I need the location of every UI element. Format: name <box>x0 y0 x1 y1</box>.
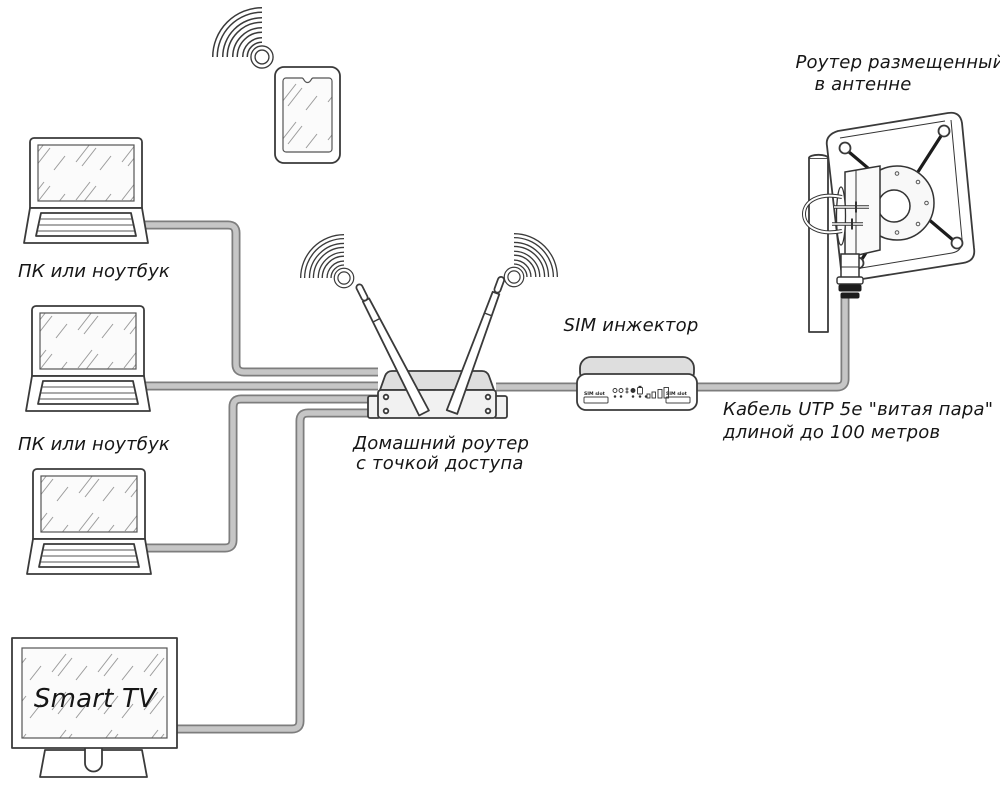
router-screw <box>384 395 389 400</box>
laptop-2 <box>26 306 150 411</box>
cable-gland <box>837 254 863 299</box>
label-pc-top: ПК или ноутбук <box>18 261 170 282</box>
label-home-router-line2: с точкой доступа <box>356 453 524 474</box>
label-cable-line2: длиной до 100 метров <box>722 422 940 443</box>
laptop-1 <box>24 138 148 243</box>
smart-tv: Smart TV <box>12 638 177 777</box>
label-home-router-line1: Домашний роутер <box>352 433 529 454</box>
sim-slot-right-label: SIM slot <box>666 391 688 397</box>
diagram-canvas: Smart TV SIM slot <box>0 0 1000 785</box>
router-face <box>378 390 496 418</box>
home-router <box>360 280 508 418</box>
laptop-3 <box>27 469 151 574</box>
cable-tv-router <box>172 413 378 729</box>
antenna-assembly <box>804 113 974 332</box>
pole-top <box>809 155 828 158</box>
panel-screw <box>952 238 963 249</box>
sim-slot-left <box>584 397 608 403</box>
router-screw <box>486 395 491 400</box>
wifi-signal-icon-right <box>506 236 555 285</box>
router-screw <box>384 409 389 414</box>
label-antenna-router-line2: в антенне <box>814 74 911 95</box>
router-screw <box>486 409 491 414</box>
tablet <box>275 67 340 163</box>
cable-laptop3-router <box>140 399 378 548</box>
sim-slot-right <box>666 397 690 403</box>
router-lid <box>380 371 494 390</box>
wifi-signal-icon-top <box>215 10 271 66</box>
label-cable-line1: Кабель UTP 5e "витая пара" <box>723 399 993 420</box>
panel-screw <box>840 143 851 154</box>
mounting-pole <box>809 158 828 332</box>
panel-screw <box>939 126 950 137</box>
network-diagram: Smart TV SIM slot <box>0 0 1000 785</box>
sim-slot-left-label: SIM slot <box>584 391 606 397</box>
tv-screen-label: Smart TV <box>34 684 158 714</box>
sim-injector: SIM slot SIM slot <box>577 357 697 410</box>
label-sim-injector: SIM инжектор <box>564 315 699 336</box>
label-pc-middle: ПК или ноутбук <box>18 434 170 455</box>
label-antenna-router-line1: Роутер размещенный <box>796 52 1000 73</box>
tablet-screen <box>283 78 332 152</box>
wifi-signal-icon-left <box>303 237 352 286</box>
